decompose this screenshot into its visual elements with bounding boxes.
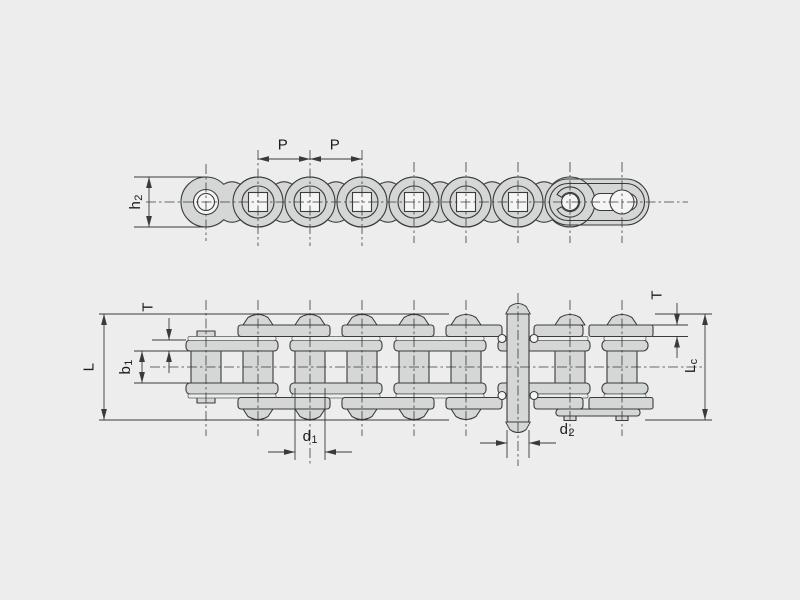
dim-label-plate-height: h2 <box>127 195 145 210</box>
dim-label-connecting-pin-length: Lc <box>682 359 700 373</box>
dim-label-pitch-2: P <box>330 137 340 154</box>
dim-label-thickness-left: T <box>140 302 157 312</box>
dim-label-pin-length: L <box>81 363 98 372</box>
spring-clip-plate <box>556 409 640 421</box>
side-view-drawing <box>134 150 688 246</box>
chain-diagram <box>0 0 800 600</box>
plan-view-drawing <box>99 293 712 466</box>
dim-label-pitch-1: P <box>278 137 288 154</box>
dim-label-roller-diameter: d1 <box>303 428 318 446</box>
chain-diagram-canvas: P P h2 T T b1 L Lc d1 d2 <box>0 0 800 600</box>
dim-label-inner-width: b1 <box>117 360 135 375</box>
dim-label-pin-diameter: d2 <box>560 421 575 439</box>
dim-label-thickness-right: T <box>649 290 666 300</box>
